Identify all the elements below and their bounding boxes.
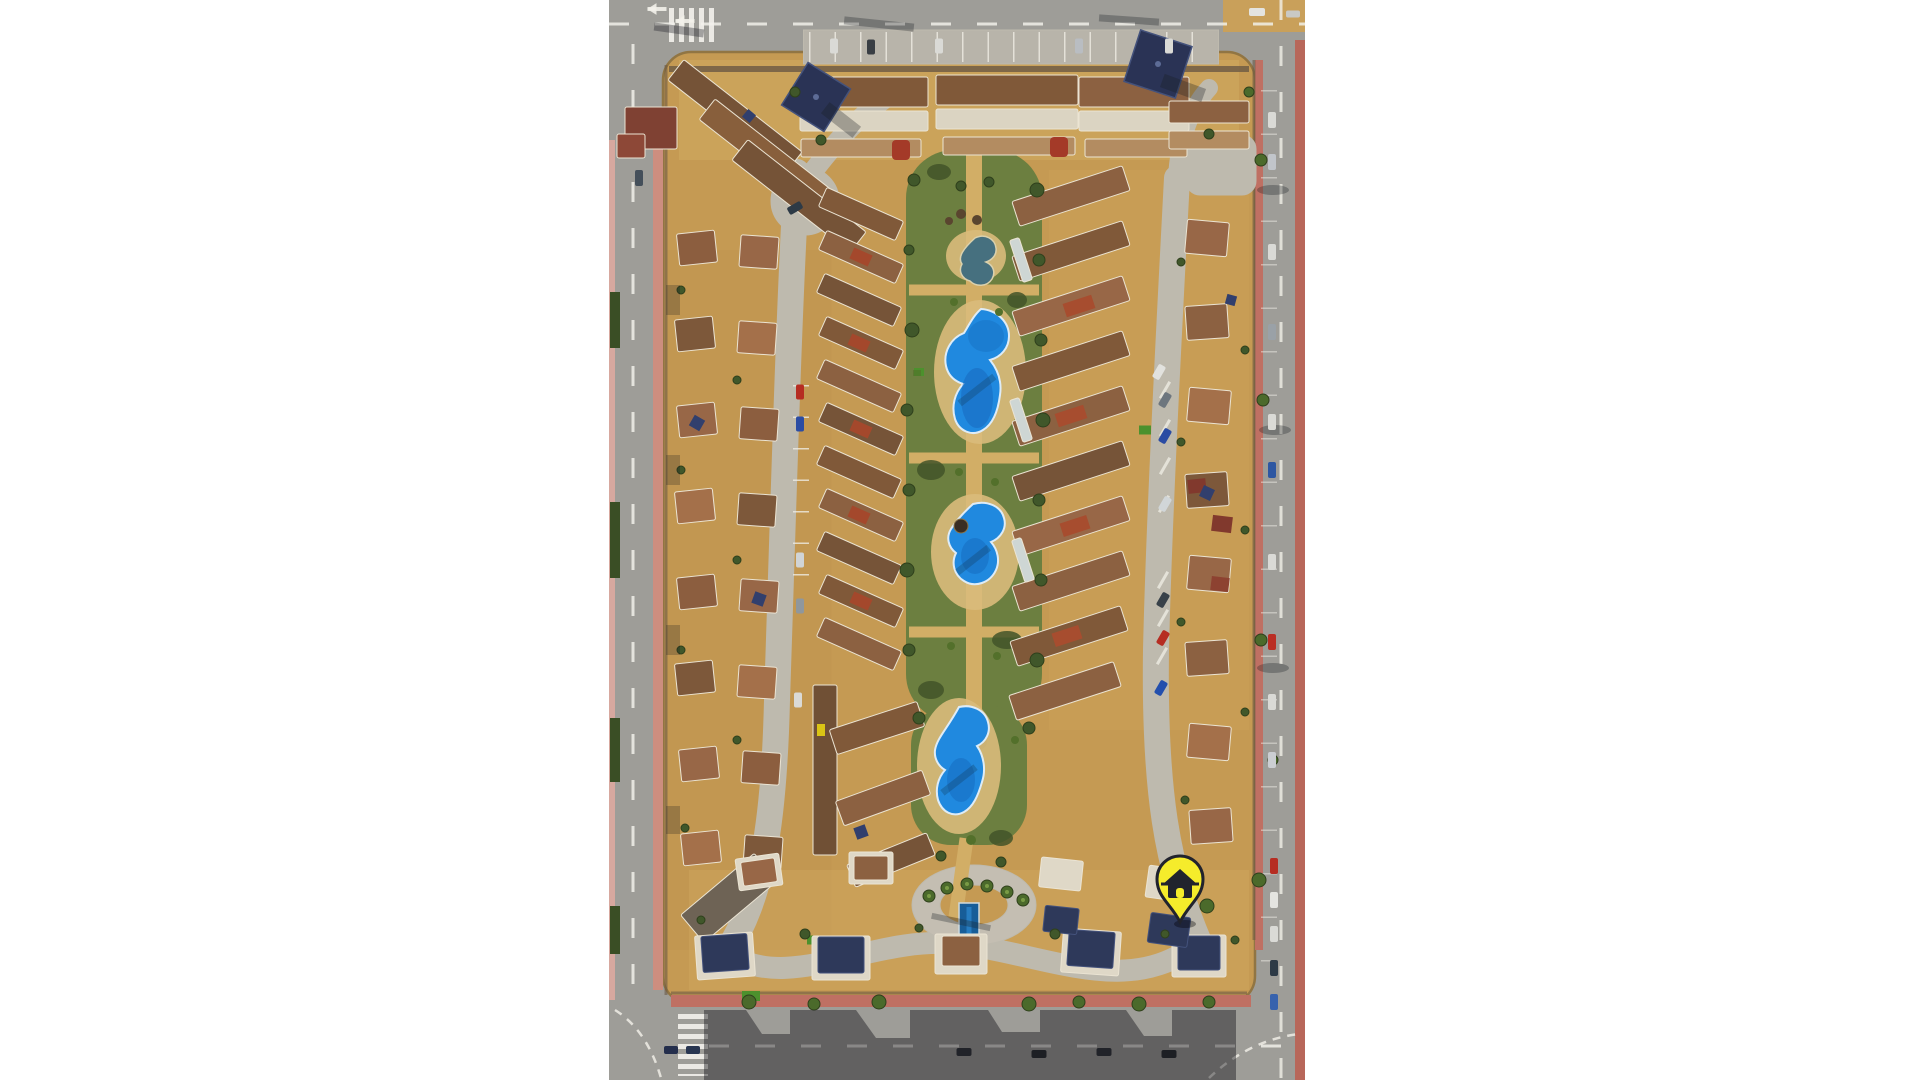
aerial-photo [609, 0, 1305, 1080]
aerial-photo-svg [609, 0, 1305, 1080]
pin-house-door [1176, 888, 1184, 898]
screenshot-canvas [0, 0, 1920, 1080]
